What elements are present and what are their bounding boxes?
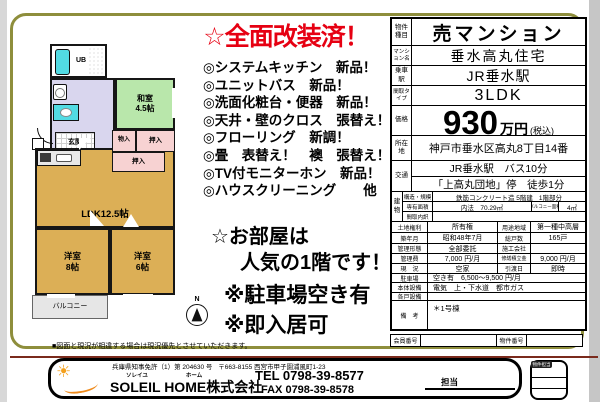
compass: N [184,296,210,326]
management-label: 管理形態 [392,244,428,253]
handover-label: 引渡日 [497,264,531,273]
handover-value: 即時 [531,264,585,273]
remarks-label: 備 考 [392,301,428,329]
disclaimer-text: ■図面と現況が相違する場合は現況優先とさせていただきます。 [52,341,252,351]
scan-edge-left [0,0,7,402]
agent-signature-line: 担当 [425,376,515,390]
row-layout-label: 間取タイプ [392,86,412,105]
access-line-1: JR垂水駅 バス10分 [412,161,585,177]
member-number-row: 会員番号 物件番号 [390,334,583,347]
row-building: 建物 構造・規模 鉄筋コンクリート造 5階建 1階部分 専有面積 内法 70.2… [392,192,585,222]
property-name-value: 垂水高丸住宅 [412,46,585,65]
room-label-ub: UB [76,57,86,65]
floor-part-text: 1階部分 [539,192,562,202]
room-label-oshiire-2: 押入 [132,158,145,166]
room-label-washitsu: 和室 [137,94,153,104]
bathroom: UB [50,44,107,78]
unit-equipment-label: 各戸設備 [392,293,428,300]
tile-pattern [88,47,104,76]
unit-equipment-value [428,293,585,300]
promo-bullet: ◎洗面化粧台・便器 新品！ [203,94,393,112]
stamp-box-label: 物件担当 [531,361,552,368]
row-management: 管理形態 全部委託 施工会社 [392,244,585,254]
row-built-year: 築年月 昭和48年7月 総戸数 165戸 [392,233,585,244]
parking-label: 駐車場 [392,274,428,282]
window-gap [47,294,75,298]
flyer-page: UB 玄関 和室 4.5帖 LDK12.5帖 [0,0,600,402]
movein-note: ※即入居可 [224,309,328,339]
company-name: SOLEIL HOME株式会社 [110,377,262,397]
toilet-icon [53,104,79,121]
row-station: 乗車駅 JR垂水駅 [392,66,585,86]
room-label-yoshitsu6-size: 6帖 [136,262,149,272]
builder-value [531,244,585,253]
washitsu-room: 和室 4.5帖 [115,78,175,130]
management-value: 全部委託 [428,244,497,253]
closet-oshiire-1: 押入 [136,130,175,152]
room-label-ldk: LDK12.5帖 [81,209,129,220]
room-label-monoire: 物入 [118,137,130,144]
stamp-divider [532,377,566,378]
structure-label: 構造・規模 [403,192,433,201]
sun-icon: ☀ [56,362,71,381]
promo-bullet: ◎畳 表替え！ 襖 張替え！ [203,147,393,165]
row-layout: 間取タイプ 3LDK [392,86,585,106]
room-label-balcony: バルコニー [53,303,88,311]
promo-title: ☆全面改装済！ [183,17,389,53]
stamp-box: 物件担当 [530,360,568,400]
window-gap [172,88,176,118]
status-value: 空家 [428,264,497,273]
scan-edge-right [589,0,600,402]
property-table: 物件種目 売マンション マンション名 垂水高丸住宅 乗車駅 JR垂水駅 間取タイ… [390,17,587,331]
promo-bullet: ◎フローリング 新調！ [203,129,393,147]
mgmt-fee-value: 7,000 円/月 [428,254,497,263]
row-access-label: 交通 [392,161,412,191]
balcony: バルコニー [32,295,108,319]
zoning-label: 用途地域 [497,222,531,232]
row-address-label: 所在地 [392,136,412,160]
land-rights-value: 所有権 [428,222,497,232]
appeal-line-2: 人気の1階です！ [240,246,391,275]
built-year-label: 築年月 [392,233,428,243]
bathtub-icon [55,49,70,75]
address-value: 神戸市垂水区高丸8丁目14番 [412,136,585,160]
utilities-label: 本体設備 [392,283,428,292]
parking-note: ※駐車場空き有 [224,279,370,309]
room-label-yoshitsu6: 洋室 [134,251,151,261]
property-type-value: 売マンション [412,19,585,45]
room-label-washitsu-size: 4.5帖 [135,104,154,114]
compass-n-label: N [184,296,210,304]
station-value: JR垂水駅 [412,66,585,85]
status-label: 現 況 [392,264,428,273]
promo-bullet: ◎システムキッチン 新品！ [203,59,393,77]
row-station-label: 乗車駅 [392,66,412,85]
built-year-value: 昭和48年7月 [428,233,497,243]
floor-plan: UB 玄関 和室 4.5帖 LDK12.5帖 [35,44,177,322]
promo-bullet: ◎ユニットバス 新品！ [203,77,393,95]
compass-needle-icon [189,307,205,323]
member-number-value [421,335,497,346]
promo-bullet: ◎ハウスクリーニング 他 [203,182,393,200]
total-units-value: 165戸 [531,233,585,243]
madori-label: 間取内訳 [403,212,433,221]
builder-label: 施工会社 [497,244,531,253]
balcony-area-value: 4㎡ [559,202,585,212]
building-area-row: 専有面積 内法 70.29㎡ バルコニー面積 4㎡ [403,202,585,212]
tel-number: TEL 0798-39-8577 [255,368,364,383]
layout-value: 3LDK [412,86,585,105]
fax-number: FAX 0798-39-8578 [261,384,354,396]
company-logo: ☀ [56,363,108,397]
room-label-yoshitsu8-size: 8帖 [66,262,79,272]
row-unit-equipment: 各戸設備 [392,293,585,301]
mgmt-fee-label: 管理費 [392,254,428,263]
row-type: 物件種目 売マンション [392,19,585,46]
washbasin-icon [53,84,67,100]
structure-text: 鉄筋コンクリート造 5階建 [456,192,533,202]
bedroom-8: 洋室 8帖 [35,228,110,295]
parking-value: 空き有 6,500～9,500 円/月 [428,274,585,282]
promo-bullet: ◎TV付モニターホン 新品！ [203,165,393,183]
row-building-label: 建物 [392,192,403,221]
total-units-label: 総戸数 [497,233,531,243]
price-value: 930 万円 (税込) [412,106,585,135]
area-value: 内法 70.29㎡ [433,202,532,211]
stamp-divider [532,388,566,389]
compass-circle [186,304,208,326]
building-madori-row: 間取内訳 [403,212,585,221]
sink-icon [56,154,72,162]
zoning-value: 第一種中高層 [531,222,585,232]
row-name-label: マンション名 [392,46,412,65]
row-access: 交通 JR垂水駅 バス10分 「上高丸団地」停 徒歩1分 [392,161,585,192]
closet-monoire: 物入 [112,130,136,152]
row-mgmt-fee: 管理費 7,000 円/月 修繕積立金 9,000 円/月 [392,254,585,264]
access-line-2: 「上高丸団地」停 徒歩1分 [412,177,585,192]
stove-icon [40,153,51,162]
bedroom-6: 洋室 6帖 [110,228,175,295]
window-gap [123,294,153,298]
member-number-label: 会員番号 [391,335,421,346]
remarks-value: ＊1号棟 [428,301,585,329]
row-type-label: 物件種目 [392,19,412,45]
price-number: 930 [443,106,498,139]
repair-fund-label: 修繕積立金 [497,254,531,263]
row-land-rights: 土地権利 所有権 用途地域 第一種中高層 [392,222,585,233]
closet-oshiire-2: 押入 [112,152,165,172]
structure-value: 鉄筋コンクリート造 5階建 1階部分 [433,192,585,202]
land-rights-label: 土地権利 [392,222,428,232]
room-label-yoshitsu8: 洋室 [64,251,81,261]
building-structure-row: 構造・規模 鉄筋コンクリート造 5階建 1階部分 [403,192,585,202]
promo-bullet: ◎天井・壁のクロス 張替え！ [203,112,393,130]
promo-bullet-list: ◎システムキッチン 新品！ ◎ユニットバス 新品！ ◎洗面化粧台・便器 新品！ … [203,59,393,200]
row-address: 所在地 神戸市垂水区高丸8丁目14番 [392,136,585,161]
room-label-oshiire-1: 押入 [149,137,162,145]
kitchen-counter [37,150,81,166]
row-name: マンション名 垂水高丸住宅 [392,46,585,66]
listing-number-value [527,335,582,346]
row-price-label: 価格 [392,106,412,135]
row-remarks: 備 考 ＊1号棟 [392,301,585,329]
listing-number-label: 物件番号 [497,335,527,346]
repair-fund-value: 9,000 円/月 [531,254,585,263]
appeal-line-1: ☆お部屋は [211,220,309,249]
row-price: 価格 930 万円 (税込) [392,106,585,136]
utilities-value: 電気 上・下水道 都市ガス [428,283,585,292]
balcony-area-label: バルコニー面積 [532,202,559,211]
license-number: 兵庫県知事免許（1）第 204630 号 [112,364,212,371]
area-label: 専有面積 [403,202,433,211]
